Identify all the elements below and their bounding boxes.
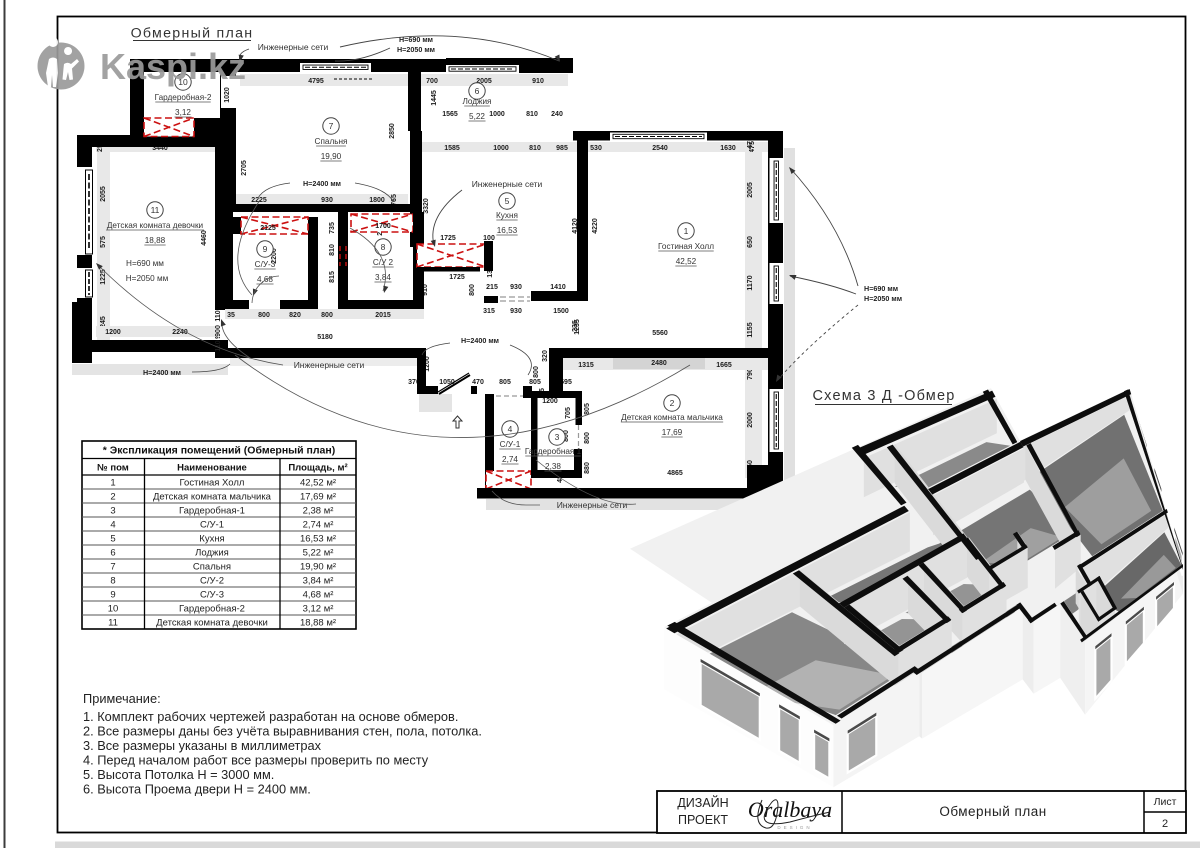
svg-text:Лист: Лист — [1154, 796, 1177, 808]
svg-text:35: 35 — [227, 312, 235, 319]
svg-text:16,53: 16,53 — [497, 226, 518, 235]
svg-text:5560: 5560 — [652, 330, 668, 337]
svg-text:3320: 3320 — [423, 198, 430, 214]
svg-text:1000: 1000 — [493, 145, 509, 152]
svg-text:6. Высота Проема двери Н = 240: 6. Высота Проема двери Н = 2400 мм. — [83, 782, 311, 797]
svg-text:4,68 м²: 4,68 м² — [303, 590, 334, 601]
svg-text:2850: 2850 — [389, 123, 396, 139]
svg-text:4460: 4460 — [201, 230, 208, 246]
svg-text:1665: 1665 — [716, 362, 732, 369]
svg-text:1410: 1410 — [550, 284, 566, 291]
svg-text:Детская комната мальчика: Детская комната мальчика — [153, 492, 272, 503]
svg-text:17,69: 17,69 — [662, 428, 683, 437]
svg-text:19,90: 19,90 — [321, 152, 342, 161]
svg-text:2,74: 2,74 — [502, 455, 518, 464]
svg-text:10: 10 — [108, 604, 119, 615]
svg-text:4: 4 — [508, 424, 513, 434]
svg-text:3,12 м²: 3,12 м² — [303, 604, 334, 615]
svg-text:810: 810 — [526, 111, 538, 118]
svg-text:320: 320 — [542, 350, 549, 362]
svg-text:6: 6 — [110, 548, 115, 559]
svg-text:4. Перед началом работ все раз: 4. Перед началом работ все размеры прове… — [83, 753, 429, 768]
svg-text:8: 8 — [110, 576, 115, 587]
svg-text:240: 240 — [551, 111, 563, 118]
svg-text:3,84: 3,84 — [375, 273, 391, 282]
svg-text:2480: 2480 — [651, 360, 667, 367]
svg-text:Н=2050 мм: Н=2050 мм — [126, 274, 169, 283]
svg-text:H=690 мм: H=690 мм — [864, 284, 898, 293]
svg-text:2055: 2055 — [100, 186, 107, 202]
svg-text:800: 800 — [533, 366, 540, 378]
svg-text:1: 1 — [684, 226, 689, 236]
svg-text:810: 810 — [329, 244, 336, 256]
svg-text:Детская комната девочки: Детская комната девочки — [107, 221, 203, 230]
svg-text:2000: 2000 — [747, 412, 754, 428]
svg-text:7: 7 — [110, 562, 115, 573]
svg-text:800: 800 — [469, 284, 476, 296]
svg-text:2015: 2015 — [375, 312, 391, 319]
svg-text:930: 930 — [321, 197, 333, 204]
svg-text:1725: 1725 — [440, 235, 456, 242]
svg-text:900: 900 — [215, 325, 222, 337]
svg-text:Гардеробная-2: Гардеробная-2 — [155, 93, 212, 102]
svg-text:650: 650 — [747, 236, 754, 248]
svg-text:6: 6 — [475, 86, 480, 96]
svg-text:2: 2 — [1162, 818, 1168, 830]
svg-text:Н=2400 мм: Н=2400 мм — [461, 336, 499, 345]
svg-text:1235: 1235 — [574, 319, 581, 335]
svg-text:1225: 1225 — [100, 269, 107, 285]
svg-text:2,74 м²: 2,74 м² — [303, 520, 334, 531]
svg-text:5: 5 — [505, 196, 510, 206]
svg-text:1020: 1020 — [224, 87, 231, 103]
svg-text:H=2050 мм: H=2050 мм — [864, 294, 902, 303]
svg-text:Гостиная Холл: Гостиная Холл — [180, 478, 245, 489]
svg-text:735: 735 — [329, 222, 336, 234]
svg-text:2,38 м²: 2,38 м² — [303, 506, 334, 517]
svg-text:805: 805 — [529, 379, 541, 386]
svg-text:2: 2 — [110, 492, 115, 503]
svg-text:2125: 2125 — [260, 225, 276, 232]
svg-text:1155: 1155 — [747, 322, 754, 337]
svg-text:705: 705 — [565, 407, 572, 419]
svg-text:9: 9 — [110, 590, 115, 601]
svg-text:H=690 мм: H=690 мм — [399, 35, 433, 44]
svg-text:2225: 2225 — [251, 197, 267, 204]
svg-text:1315: 1315 — [578, 362, 594, 369]
svg-text:1725: 1725 — [449, 274, 465, 281]
svg-text:1500: 1500 — [553, 308, 569, 315]
svg-text:18,88: 18,88 — [145, 236, 166, 245]
svg-text:1800: 1800 — [369, 197, 385, 204]
svg-text:Инженерные сети: Инженерные сети — [557, 500, 628, 510]
svg-text:5: 5 — [110, 534, 115, 545]
svg-text:Гардеробная-2: Гардеробная-2 — [179, 604, 245, 615]
svg-text:215: 215 — [486, 284, 498, 291]
svg-text:Спальня: Спальня — [193, 562, 231, 573]
svg-text:Кухня: Кухня — [496, 211, 518, 220]
svg-text:Наименование: Наименование — [177, 463, 247, 474]
svg-text:930: 930 — [510, 308, 522, 315]
svg-text:4,68: 4,68 — [257, 275, 273, 284]
svg-text:DESIGN: DESIGN — [777, 825, 812, 830]
svg-text:Гардеробная-1: Гардеробная-1 — [179, 506, 245, 517]
svg-text:1585: 1585 — [444, 145, 460, 152]
svg-text:800: 800 — [321, 312, 333, 319]
svg-text:930: 930 — [510, 284, 522, 291]
svg-text:№ пом: № пом — [97, 463, 129, 474]
svg-text:110: 110 — [215, 310, 222, 321]
svg-text:Инженерные сети: Инженерные сети — [294, 360, 365, 370]
svg-text:42,52: 42,52 — [676, 257, 697, 266]
svg-text:470: 470 — [472, 379, 484, 386]
svg-text:Oralbaya: Oralbaya — [748, 797, 832, 822]
svg-text:Н=2400 мм: Н=2400 мм — [303, 179, 341, 188]
svg-text:1445: 1445 — [431, 90, 438, 106]
svg-text:Лоджия: Лоджия — [462, 97, 491, 106]
svg-text:530: 530 — [590, 145, 602, 152]
svg-text:Инженерные сети: Инженерные сети — [472, 179, 543, 189]
svg-text:Лоджия: Лоджия — [195, 548, 229, 559]
svg-text:2705: 2705 — [241, 160, 248, 176]
svg-text:Детская комната мальчика: Детская комната мальчика — [621, 413, 723, 422]
svg-text:2. Все размеры даны без учёта: 2. Все размеры даны без учёта выравниван… — [83, 724, 482, 739]
svg-text:5,22: 5,22 — [469, 112, 485, 121]
svg-text:4: 4 — [110, 520, 115, 531]
svg-text:Н=690 мм: Н=690 мм — [126, 259, 164, 268]
svg-text:Обмерный план: Обмерный план — [131, 26, 254, 42]
svg-text:Спальня: Спальня — [315, 137, 348, 146]
svg-text:Схема 3 Д -Обмер: Схема 3 Д -Обмер — [812, 388, 955, 404]
svg-text:С/У-2: С/У-2 — [200, 576, 224, 587]
svg-text:С/У-1: С/У-1 — [500, 440, 521, 449]
svg-text:2540: 2540 — [652, 145, 668, 152]
svg-text:800: 800 — [584, 432, 591, 444]
svg-text:H=2050 мм: H=2050 мм — [397, 45, 435, 54]
svg-text:5180: 5180 — [317, 334, 333, 341]
svg-text:С/У-1: С/У-1 — [200, 520, 224, 531]
svg-text:Гардеробная 1: Гардеробная 1 — [525, 447, 582, 456]
svg-text:С/У-3: С/У-3 — [200, 590, 224, 601]
svg-text:Инженерные сети: Инженерные сети — [258, 42, 329, 52]
svg-text:19,90 м²: 19,90 м² — [300, 562, 336, 573]
svg-text:3,12: 3,12 — [175, 108, 191, 117]
svg-text:11: 11 — [108, 618, 118, 629]
svg-text:Детская комната девочки: Детская комната девочки — [156, 618, 268, 629]
svg-text:Примечание:: Примечание: — [83, 691, 161, 706]
svg-text:910: 910 — [532, 78, 544, 85]
svg-text:16,53 м²: 16,53 м² — [300, 534, 336, 545]
svg-text:7: 7 — [329, 121, 334, 131]
svg-text:110: 110 — [215, 340, 222, 351]
svg-text:1. Комплект рабочих чертежей р: 1. Комплект рабочих чертежей разработан … — [83, 709, 458, 724]
svg-text:5. Высота Потолка Н = 3000 мм.: 5. Высота Потолка Н = 3000 мм. — [83, 767, 274, 782]
svg-text:1565: 1565 — [442, 111, 458, 118]
svg-text:Площадь, м²: Площадь, м² — [288, 463, 347, 474]
svg-text:3,84 м²: 3,84 м² — [303, 576, 334, 587]
svg-text:2: 2 — [670, 398, 675, 408]
svg-text:100: 100 — [483, 235, 495, 242]
svg-text:Гостиная Холл: Гостиная Холл — [658, 242, 714, 251]
svg-text:9: 9 — [263, 244, 268, 254]
svg-text:18,88 м²: 18,88 м² — [300, 618, 336, 629]
svg-text:4865: 4865 — [667, 470, 683, 477]
svg-text:1630: 1630 — [720, 145, 736, 152]
svg-text:11: 11 — [151, 205, 160, 215]
svg-text:315: 315 — [483, 308, 495, 315]
svg-text:Кухня: Кухня — [199, 534, 224, 545]
svg-text:2240: 2240 — [172, 329, 188, 336]
svg-text:575: 575 — [100, 236, 107, 248]
svg-text:Н=2400 мм: Н=2400 мм — [143, 368, 181, 377]
svg-text:1000: 1000 — [489, 111, 505, 118]
svg-text:810: 810 — [529, 145, 541, 152]
svg-text:4795: 4795 — [308, 78, 324, 85]
svg-text:Kaspi.kz: Kaspi.kz — [100, 46, 246, 87]
svg-text:880: 880 — [584, 462, 591, 474]
svg-text:ДИЗАЙН: ДИЗАЙН — [677, 795, 728, 810]
svg-text:3. Все размеры указаны в милли: 3. Все размеры указаны в миллиметрах — [83, 738, 322, 753]
svg-text:С/У-3: С/У-3 — [255, 260, 276, 269]
svg-text:4220: 4220 — [592, 218, 599, 234]
svg-text:2,38: 2,38 — [545, 462, 561, 471]
svg-text:* Экспликация помещений (Обмер: * Экспликация помещений (Обмерный план) — [103, 445, 335, 457]
svg-text:3: 3 — [555, 432, 560, 442]
svg-text:805: 805 — [499, 379, 511, 386]
svg-text:700: 700 — [426, 78, 438, 85]
svg-text:8: 8 — [381, 242, 386, 252]
svg-text:17,69 м²: 17,69 м² — [300, 492, 336, 503]
svg-text:1700: 1700 — [375, 223, 391, 230]
svg-text:1: 1 — [110, 478, 115, 489]
svg-text:1170: 1170 — [747, 275, 754, 290]
svg-text:815: 815 — [329, 271, 336, 283]
svg-text:42,52 м²: 42,52 м² — [300, 478, 336, 489]
svg-text:820: 820 — [289, 312, 301, 319]
svg-text:800: 800 — [258, 312, 270, 319]
svg-text:ПРОЕКТ: ПРОЕКТ — [678, 813, 728, 827]
svg-text:3: 3 — [110, 506, 115, 517]
svg-text:1200: 1200 — [105, 329, 121, 336]
svg-text:985: 985 — [556, 145, 568, 152]
svg-text:805: 805 — [584, 403, 591, 415]
svg-text:Обмерный план: Обмерный план — [939, 804, 1046, 819]
svg-text:2005: 2005 — [747, 182, 754, 198]
svg-text:1200: 1200 — [542, 398, 558, 405]
svg-text:5,22 м²: 5,22 м² — [303, 548, 334, 559]
